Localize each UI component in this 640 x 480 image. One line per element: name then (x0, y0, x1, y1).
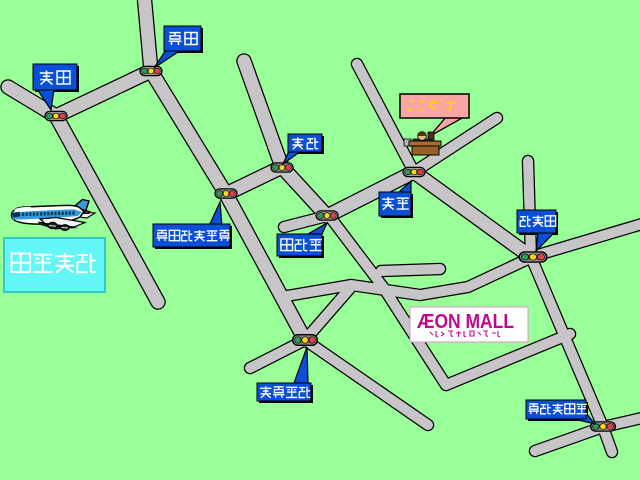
svg-text:ÆON MALL: ÆON MALL (417, 311, 514, 333)
